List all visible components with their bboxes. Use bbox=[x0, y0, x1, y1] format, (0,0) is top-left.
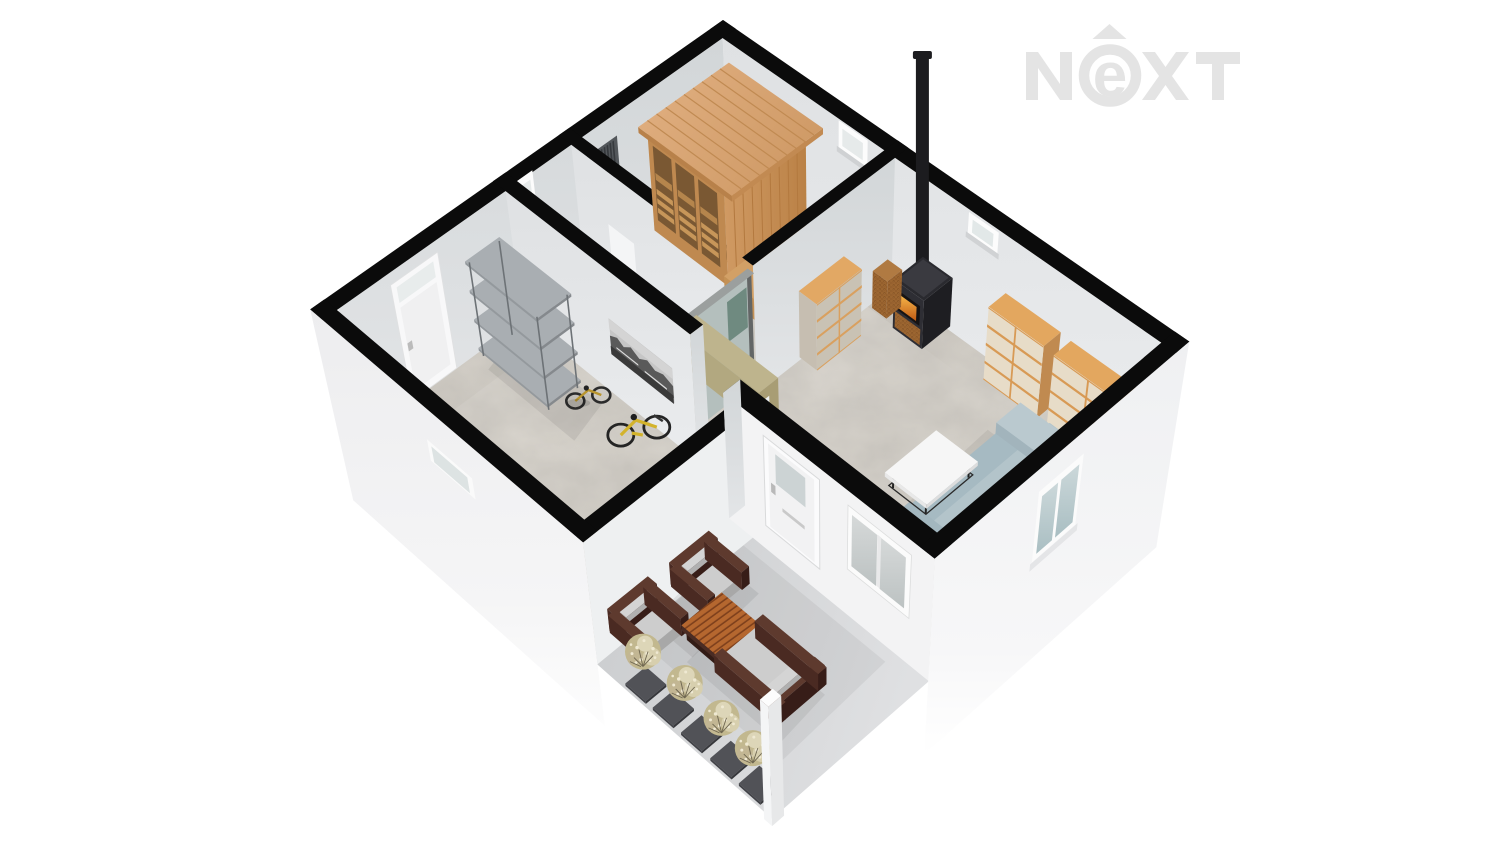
svg-text:e: e bbox=[1093, 41, 1127, 110]
